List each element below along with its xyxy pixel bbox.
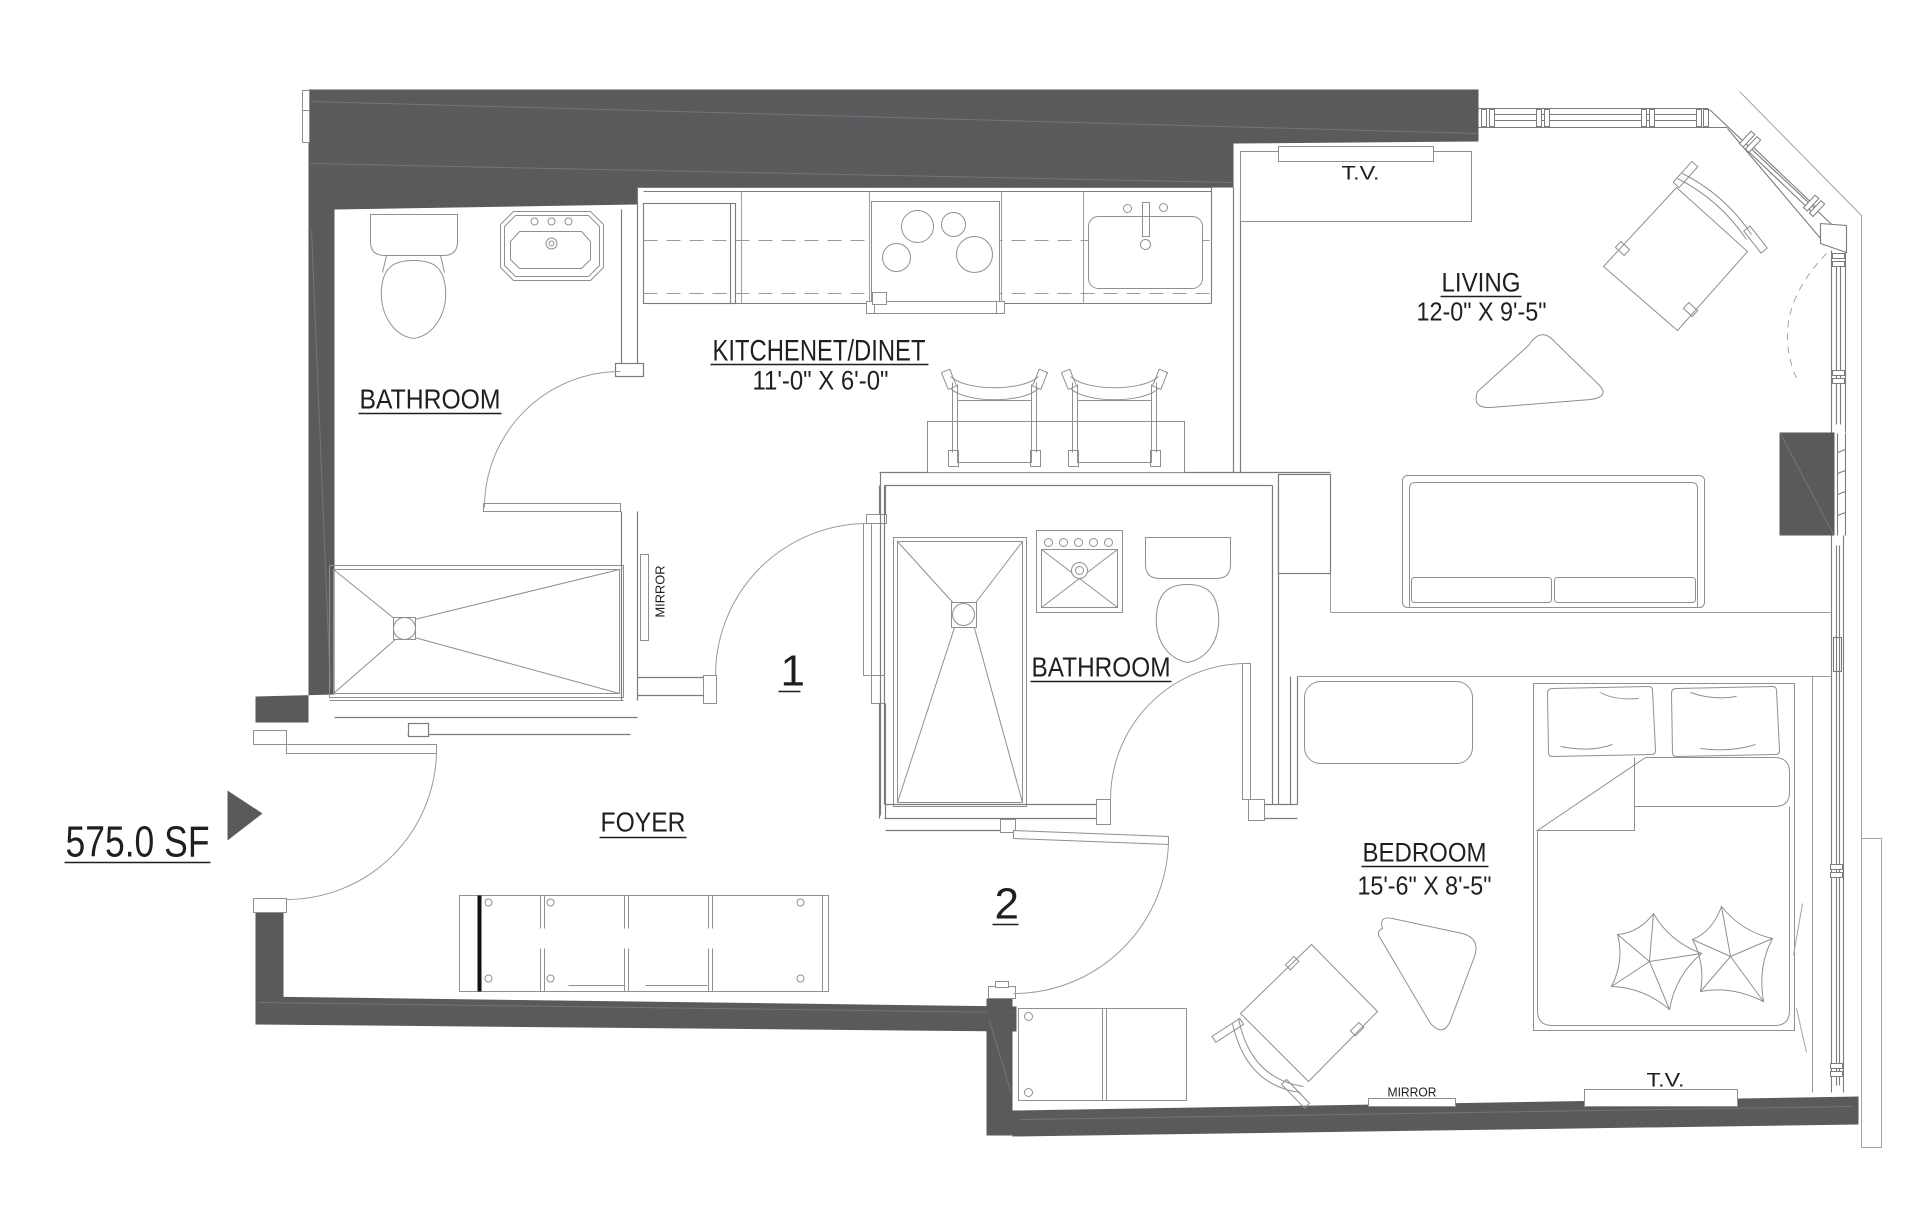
svg-text:11'-0" X 6'-0": 11'-0" X 6'-0" xyxy=(753,366,889,396)
svg-text:BATHROOM: BATHROOM xyxy=(360,384,501,415)
svg-text:575.0 SF: 575.0 SF xyxy=(66,818,210,867)
svg-text:BATHROOM: BATHROOM xyxy=(1032,652,1171,683)
svg-text:1: 1 xyxy=(781,647,805,696)
svg-text:15'-6" X 8'-5": 15'-6" X 8'-5" xyxy=(1358,871,1492,901)
svg-text:T.V.: T.V. xyxy=(1647,1071,1685,1092)
svg-text:KITCHENET/DINET: KITCHENET/DINET xyxy=(713,335,926,368)
svg-text:BEDROOM: BEDROOM xyxy=(1363,838,1487,868)
svg-text:2: 2 xyxy=(995,880,1019,929)
svg-text:12-0" X 9'-5": 12-0" X 9'-5" xyxy=(1417,297,1547,327)
svg-text:MIRROR: MIRROR xyxy=(653,566,668,618)
svg-text:T.V.: T.V. xyxy=(1342,164,1380,185)
svg-text:FOYER: FOYER xyxy=(601,807,686,838)
svg-text:MIRROR: MIRROR xyxy=(1388,1085,1437,1100)
svg-text:LIVING: LIVING xyxy=(1442,268,1521,298)
